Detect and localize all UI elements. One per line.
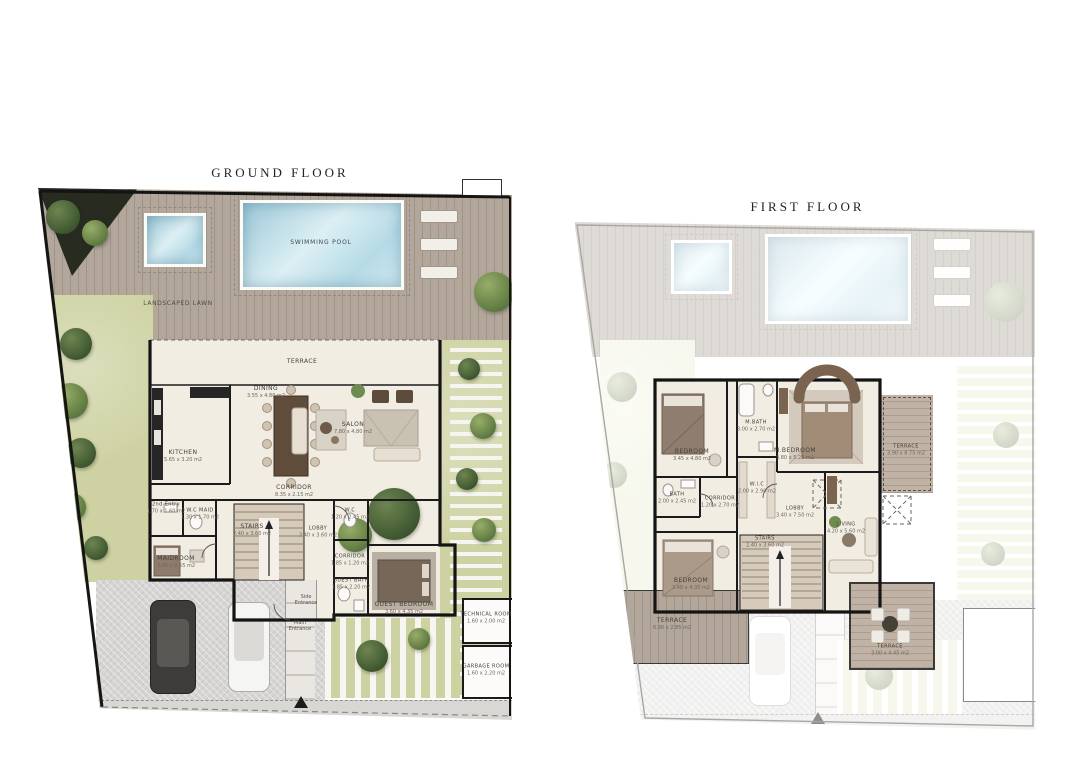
room-name: BEDROOM	[673, 448, 711, 456]
room-label-living: LIVING4.20 x 5.60 m2	[827, 522, 865, 535]
palm-tree	[46, 200, 80, 234]
ghost-plunge-pool	[671, 240, 732, 294]
room-dims: 5.65 x 3.20 m2	[164, 457, 202, 464]
room-dims: 3.45 x 2.55 m2	[157, 563, 195, 570]
plunge-pool	[144, 213, 206, 267]
room-name: GUEST BATH	[332, 578, 370, 585]
garden-bush	[456, 468, 478, 490]
room-label-maidroom: MAIDROOM3.45 x 2.55 m2	[157, 555, 195, 569]
entry-gate	[462, 179, 502, 197]
room-label-mbath: M.BATH3.00 x 2.70 m2	[737, 420, 775, 433]
north-arrow	[294, 696, 308, 708]
sun-loungers	[420, 210, 458, 294]
room-dims: 2.40 x 3.60 m2	[233, 531, 271, 538]
north-arrow	[811, 712, 825, 724]
room-label-stairs-first: STAIRS2.40 x 3.60 m2	[746, 536, 784, 549]
room-label-stairs: STAIRS2.40 x 3.60 m2	[233, 523, 271, 537]
room-dims: 7.80 x 4.80 m2	[334, 429, 372, 436]
room-label-bedroom-1: BEDROOM3.45 x 4.80 m2	[673, 448, 711, 462]
room-dims: 3.00 x 2.70 m2	[737, 426, 775, 433]
ghost-bush	[993, 422, 1019, 448]
room-name: CORRIDOR	[331, 554, 369, 561]
garden-bush	[470, 413, 496, 439]
room-dims: 1.20 x 2.45 m2	[331, 514, 369, 521]
room-label-salon: SALON7.80 x 4.80 m2	[334, 421, 372, 435]
room-label-wc: W.C1.20 x 2.45 m2	[331, 508, 369, 521]
room-dims: 3.55 x 4.80 m2	[247, 393, 285, 400]
room-name: KITCHEN	[164, 449, 202, 457]
first-floor-site-area	[565, 222, 1040, 735]
ghost-palm	[985, 282, 1025, 322]
car-sedan	[228, 602, 270, 692]
room-label-terrace-right: TERRACE3.90 x 8.75 m2	[887, 444, 925, 457]
room-dims: 2.00 x 2.45 m2	[658, 498, 696, 505]
ground-floor-plan: SWIMMING POOL LANDSCAPED LAWN TERRACE DI…	[38, 188, 512, 720]
room-dims: 8.35 x 2.15 m2	[275, 492, 313, 499]
garden-tree	[66, 438, 96, 468]
room-name: TERRACE	[653, 617, 691, 625]
room-name: MAIDROOM	[157, 555, 195, 563]
garden-bush	[472, 518, 496, 542]
ghost-car-sedan	[749, 616, 791, 706]
room-dims: 1.70 x 1.60 m2	[147, 508, 185, 515]
room-label-corridor: CORRIDOR8.35 x 2.15 m2	[275, 484, 313, 498]
floorplan-sheet: GROUND FLOOR	[0, 0, 1072, 768]
ghost-tree	[601, 462, 627, 488]
room-name: CORRIDOR	[701, 496, 739, 503]
ghost-bush	[981, 542, 1005, 566]
room-label-kitchen: KITCHEN5.65 x 3.20 m2	[164, 449, 202, 463]
room-dims: 1.60 x 2.00 m2	[460, 618, 511, 625]
courtyard-tree	[338, 518, 372, 552]
room-dims: 1.30 x 1.70 m2	[181, 514, 219, 521]
landscaped-lawn-text: LANDSCAPED LAWN	[143, 300, 212, 308]
room-label-technical-room: TECHNICAL ROOM1.60 x 2.00 m2	[460, 612, 511, 625]
ghost-tree	[607, 372, 637, 402]
room-name: BEDROOM	[672, 577, 710, 585]
ground-floor-title: GROUND FLOOR	[120, 165, 440, 181]
first-floor-title: FIRST FLOOR	[650, 199, 965, 215]
room-name: M.BEDROOM	[774, 447, 816, 455]
room-label-corridor-small: CORRIDOR1.85 x 1.20 m2	[331, 554, 369, 567]
car-suv	[150, 600, 196, 694]
courtyard-tree	[368, 488, 420, 540]
main-entrance-label: Main Entrance	[285, 620, 315, 633]
first-floor-plan: BEDROOM3.45 x 4.80 m2 M.BATH3.00 x 2.70 …	[565, 222, 1040, 735]
room-label-dining: DINING3.55 x 4.80 m2	[247, 385, 285, 399]
garden-tree	[60, 328, 92, 360]
room-dims: 3.90 x 8.75 m2	[887, 450, 925, 457]
room-dims: 3.80 x 5.20 m2	[774, 455, 816, 462]
front-garden-bush	[408, 628, 430, 650]
room-name: GARBAGE ROOM	[463, 664, 510, 671]
room-label-lobby: LOBBY2.40 x 3.60 m2	[299, 526, 337, 539]
room-name: SALON	[334, 421, 372, 429]
room-dims: 2.40 x 3.60 m2	[746, 542, 784, 549]
room-dims: 3.45 x 4.80 m2	[673, 456, 711, 463]
service-plot-area	[963, 608, 1040, 702]
sun-lounger	[933, 294, 971, 307]
room-dims: 3.00 x 4.45 m2	[871, 650, 909, 657]
room-name: CORRIDOR	[275, 484, 313, 492]
room-label-guest-bath: GUEST BATH1.85 x 2.20 m2	[332, 578, 370, 591]
ghost-swimming-pool	[765, 234, 911, 324]
sun-lounger	[420, 238, 458, 251]
room-label-2nd-entry: 2nd Entry1.70 x 1.60 m2	[147, 502, 185, 515]
garden-tree	[52, 383, 88, 419]
room-label-lobby-first: LOBBY3.40 x 7.50 m2	[776, 506, 814, 519]
side-entrance-label: Side Entrance	[291, 594, 321, 607]
palm-tree	[82, 220, 108, 246]
room-label-bath-2: BATH2.00 x 2.45 m2	[658, 492, 696, 505]
room-name: 2nd Entry	[147, 502, 185, 509]
room-dims: 1.20 x 2.70 m2	[701, 502, 739, 509]
room-dims: 1.85 x 1.20 m2	[331, 560, 369, 567]
terrace-bottom-center	[849, 582, 935, 670]
room-label-wic: W.I.C2.00 x 2.90 m2	[738, 482, 776, 495]
room-label-guest-bedroom: GUEST BEDROOM3.60 x 4.35 m2	[375, 601, 434, 615]
room-label-mbedroom: M.BEDROOM3.80 x 5.20 m2	[774, 447, 816, 461]
room-name: TECHNICAL ROOM	[460, 612, 511, 619]
room-label-terrace-bc: TERRACE3.00 x 4.45 m2	[871, 644, 909, 657]
garden-bush	[458, 358, 480, 380]
garden-tree	[58, 493, 86, 521]
room-name: W.C MAID	[181, 508, 219, 515]
sun-lounger	[933, 266, 971, 279]
room-dims: 4.20 x 5.60 m2	[827, 528, 865, 535]
ground-floor-site-area	[38, 188, 512, 720]
room-name: GUEST BEDROOM	[375, 601, 434, 609]
sun-lounger	[420, 266, 458, 279]
room-label-terrace: TERRACE	[287, 358, 317, 366]
room-dims: 1.85 x 2.20 m2	[332, 584, 370, 591]
room-name: TERRACE	[287, 358, 317, 366]
room-dims: 2.00 x 2.90 m2	[738, 488, 776, 495]
room-label-wc-maid: W.C MAID1.30 x 1.70 m2	[181, 508, 219, 521]
palm-tree	[474, 272, 512, 312]
sun-lounger	[420, 210, 458, 223]
room-name: DINING	[247, 385, 285, 393]
room-dims: 6.90 x 2.85 m2	[653, 625, 691, 632]
room-label-garbage-room: GARBAGE ROOM1.60 x 2.20 m2	[463, 664, 510, 677]
room-dims: 1.60 x 2.20 m2	[463, 670, 510, 677]
house-interior	[150, 340, 440, 620]
room-label-corridor-first: CORRIDOR1.20 x 2.70 m2	[701, 496, 739, 509]
garden-tree	[84, 536, 108, 560]
front-garden-palm	[356, 640, 388, 672]
room-label-terrace-bl: TERRACE6.90 x 2.85 m2	[653, 617, 691, 631]
swimming-pool-label: SWIMMING POOL	[290, 239, 352, 247]
room-dims: 3.40 x 7.50 m2	[776, 512, 814, 519]
sun-lounger	[933, 238, 971, 251]
landscaped-lawn-label: LANDSCAPED LAWN	[143, 300, 212, 308]
front-garden	[325, 618, 460, 698]
room-label-bedroom-2: BEDROOM3.40 x 4.35 m2	[672, 577, 710, 591]
swimming-pool-text: SWIMMING POOL	[290, 239, 352, 247]
ghost-road-strip	[575, 714, 1039, 735]
room-dims: 3.60 x 4.35 m2	[375, 609, 434, 616]
ghost-sun-loungers	[933, 238, 971, 322]
room-dims: 2.40 x 3.60 m2	[299, 532, 337, 539]
room-name: STAIRS	[233, 523, 271, 531]
room-dims: 3.40 x 4.35 m2	[672, 585, 710, 592]
